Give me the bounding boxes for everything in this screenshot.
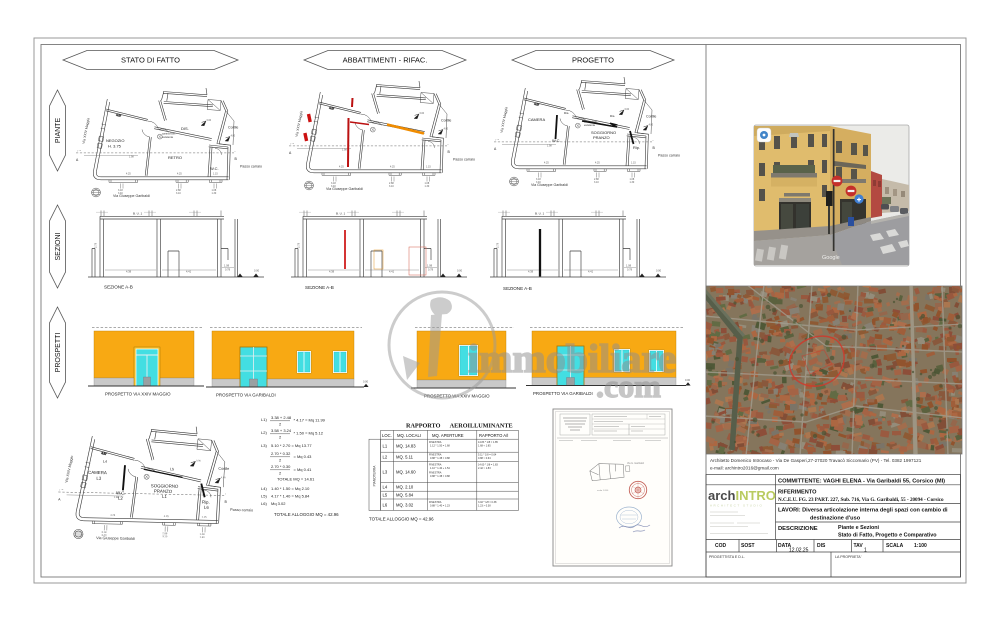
svg-text:0.00: 0.00 [207, 120, 212, 122]
svg-text:,→: ,→ [290, 141, 294, 145]
svg-text:MQ. 14.83: MQ. 14.83 [396, 443, 416, 448]
svg-text:SCALA: SCALA [886, 543, 904, 549]
svg-text:ARCHITECT STUDIO: ARCHITECT STUDIO [710, 504, 763, 508]
svg-text:1.30: 1.30 [630, 181, 635, 184]
svg-text:L4): L4) [261, 486, 267, 491]
svg-text:PROSPETTO VIA XXIV MAGGIO: PROSPETTO VIA XXIV MAGGIO [105, 392, 171, 397]
svg-text:CAMERA: CAMERA [528, 117, 545, 122]
svg-text:PROSPETTI: PROSPETTI [55, 333, 62, 373]
svg-text:,→: ,→ [59, 487, 64, 491]
svg-text:ABBATTIMENTI - RIFAC.: ABBATTIMENTI - RIFAC. [343, 56, 428, 65]
svg-text:Via G. Garibaldi: Via G. Garibaldi [627, 462, 644, 465]
svg-text:Dis.: Dis. [564, 111, 569, 115]
svg-text:,: , [653, 138, 654, 142]
svg-text:SEZIONE A-B: SEZIONE A-B [503, 286, 532, 291]
svg-text:4.25: 4.25 [595, 162, 600, 165]
svg-text:MQ. 3.02: MQ. 3.02 [396, 502, 414, 507]
svg-text:MQ. 5.84: MQ. 5.84 [396, 493, 414, 498]
svg-text:2.70 * 0.30: 2.70 * 0.30 [271, 464, 291, 469]
svg-text:0.88 > 0.64: 0.88 > 0.64 [478, 457, 491, 460]
svg-text:L1): L1) [261, 417, 267, 422]
svg-text:3.10: 3.10 [594, 181, 599, 184]
svg-text:Cortile: Cortile [646, 115, 656, 119]
svg-text:2.78: 2.78 [93, 242, 97, 248]
svg-text:4.00: 4.00 [444, 129, 449, 131]
svg-text:L2): L2) [261, 430, 267, 435]
svg-text:DESCRIZIONE: DESCRIZIONE [778, 526, 818, 532]
svg-text:0.88 * 1.38 = 0.88: 0.88 * 1.38 = 0.88 [430, 457, 450, 460]
svg-text:3.58 + 3.24: 3.58 + 3.24 [271, 428, 292, 433]
svg-text:1.15: 1.15 [213, 173, 218, 176]
svg-text:SOST: SOST [741, 543, 755, 549]
svg-text:1.30: 1.30 [212, 192, 217, 195]
svg-text:2.78: 2.78 [495, 242, 499, 248]
svg-text:2.70 * 0.32: 2.70 * 0.32 [271, 451, 291, 456]
svg-text:4.00: 4.00 [221, 476, 226, 479]
svg-text:L4: L4 [383, 484, 388, 489]
svg-text:0.00: 0.00 [196, 459, 201, 462]
svg-text:5.10 * 2.70 = Mq 13.77: 5.10 * 2.70 = Mq 13.77 [271, 443, 312, 448]
svg-text:1.15: 1.15 [202, 516, 208, 519]
svg-text:0.88 * 1.40 = 1.23: 0.88 * 1.40 = 1.23 [430, 505, 450, 508]
svg-text:Via Giuseppe Garibaldi: Via Giuseppe Garibaldi [113, 194, 150, 198]
svg-text:Passo carraio: Passo carraio [240, 165, 262, 169]
svg-text:NEGOZIO: NEGOZIO [106, 138, 124, 143]
svg-text:B. U. 1: B. U. 1 [336, 212, 346, 216]
svg-text:3.10: 3.10 [162, 535, 168, 538]
svg-text:1: 1 [864, 548, 867, 554]
svg-text:4.25: 4.25 [110, 514, 116, 517]
svg-text:Rip.: Rip. [633, 145, 640, 150]
svg-text:1.08: 1.08 [626, 264, 632, 268]
svg-text:1.98: 1.98 [129, 156, 134, 159]
svg-text:Via Giuseppe Garibaldi: Via Giuseppe Garibaldi [531, 183, 568, 187]
svg-text:PIANTE: PIANTE [55, 118, 62, 144]
svg-text:0.00: 0.00 [685, 378, 691, 382]
svg-text:3.10: 3.10 [389, 185, 394, 188]
svg-text:Cortile: Cortile [441, 119, 451, 123]
svg-text:SEZIONE A-B: SEZIONE A-B [305, 285, 334, 290]
svg-text:L1: L1 [162, 494, 168, 499]
svg-text:4.25: 4.25 [390, 166, 395, 169]
svg-text:1:100: 1:100 [914, 543, 927, 549]
svg-text:MQ. APERTURE: MQ. APERTURE [432, 433, 464, 438]
svg-text:PIANOTERRA: PIANOTERRA [373, 465, 377, 487]
svg-text:Passo carraio: Passo carraio [230, 508, 253, 512]
svg-text:MQ. LOCALI: MQ. LOCALI [397, 433, 421, 438]
svg-text:Cortile: Cortile [228, 126, 238, 130]
svg-text:1.98: 1.98 [342, 149, 347, 152]
svg-text:B. U. 1: B. U. 1 [535, 212, 545, 216]
svg-text:COMMITTENTE: VAGHI ELENA - Via: COMMITTENTE: VAGHI ELENA - Via Garibaldi… [778, 478, 945, 484]
svg-text:PROGETTO: PROGETTO [572, 56, 614, 65]
svg-text:CAMERA: CAMERA [88, 470, 107, 475]
svg-text:L6): L6) [261, 501, 267, 506]
svg-text:Via Giuseppe Garibaldi: Via Giuseppe Garibaldi [96, 536, 135, 541]
svg-text:Google: Google [822, 255, 840, 261]
svg-text:.com: .com [596, 368, 661, 404]
svg-text:L2: L2 [383, 455, 388, 460]
svg-text:1.08: 1.08 [224, 264, 230, 268]
svg-text:1.98: 1.98 [547, 145, 552, 148]
svg-text:L5: L5 [383, 493, 388, 498]
svg-text:4.25: 4.25 [339, 166, 344, 169]
svg-text:STATO DI FATTO: STATO DI FATTO [121, 56, 180, 65]
svg-text:1.68 < 1.85: 1.68 < 1.85 [478, 445, 491, 448]
svg-text:Passo carraio: Passo carraio [453, 158, 475, 162]
svg-text:L3: L3 [96, 476, 102, 481]
svg-text:PRANZO: PRANZO [593, 135, 610, 140]
svg-text:1.10 * 1.40 + 1.54: 1.10 * 1.40 + 1.54 [430, 467, 450, 470]
svg-text:MQ. 5.11: MQ. 5.11 [396, 455, 414, 460]
svg-text:TOTALE ALLOGGIO MQ = 42.96: TOTALE ALLOGGIO MQ = 42.96 [369, 517, 434, 522]
svg-text:RETRO: RETRO [168, 155, 182, 160]
svg-text:4.25: 4.25 [164, 515, 170, 518]
svg-text:RIFERIMENTO: RIFERIMENTO [778, 490, 817, 496]
svg-text:L5): L5) [261, 494, 267, 499]
svg-text:B. U. 1: B. U. 1 [133, 212, 143, 216]
svg-text:Cortile: Cortile [218, 467, 229, 471]
svg-text:L1: L1 [383, 443, 388, 448]
svg-text:DIS.: DIS. [181, 126, 189, 131]
svg-text:e-mail: archintro2016@gmail.co: e-mail: archintro2016@gmail.com [710, 466, 779, 471]
svg-text:Via Giuseppe Garibaldi: Via Giuseppe Garibaldi [326, 187, 363, 191]
svg-text:archINTRO: archINTRO [708, 488, 776, 503]
svg-text:scala 1:200: scala 1:200 [597, 490, 609, 492]
svg-text:L2: L2 [118, 496, 124, 501]
svg-text:SEZIONI: SEZIONI [55, 232, 62, 260]
svg-text:4.25: 4.25 [544, 162, 549, 165]
svg-text:MQ. 2.10: MQ. 2.10 [396, 484, 414, 489]
svg-text:* 1.50 = Mq 5.12: * 1.50 = Mq 5.12 [294, 431, 324, 436]
svg-text:0.88 * 1.38 = 0.88: 0.88 * 1.38 = 0.88 [430, 475, 450, 478]
svg-text:L3): L3) [261, 443, 267, 448]
svg-text:3.10: 3.10 [176, 192, 181, 195]
svg-text:= Mq 0.43: = Mq 0.43 [294, 454, 313, 459]
svg-text:TOTALE MQ = 14.61: TOTALE MQ = 14.61 [277, 477, 315, 482]
svg-text:1.23 > 0.38: 1.23 > 0.38 [478, 505, 491, 508]
svg-text:RAPPORTO A/I: RAPPORTO A/I [479, 433, 508, 438]
svg-text:PROGETTISTA E D.L.: PROGETTISTA E D.L. [709, 555, 745, 559]
svg-text:,: , [225, 491, 226, 495]
svg-text:0.00: 0.00 [420, 113, 425, 115]
svg-text:0.78: 0.78 [627, 268, 633, 272]
svg-text:Architetto Domenico Introcaso: Architetto Domenico Introcaso - Via De G… [710, 458, 922, 463]
svg-text:TAV: TAV [854, 543, 864, 549]
svg-text:0.00: 0.00 [254, 269, 260, 273]
svg-text:4.25: 4.25 [177, 173, 182, 176]
svg-text:esistente: esistente [162, 135, 174, 139]
svg-text:1.40 * 1.50 = Mq 2.10: 1.40 * 1.50 = Mq 2.10 [271, 486, 310, 491]
svg-text:0.00: 0.00 [656, 269, 662, 273]
svg-text:COD: COD [715, 543, 727, 549]
svg-text:L3: L3 [383, 470, 388, 475]
svg-text:LOC.: LOC. [382, 433, 392, 438]
svg-text:W.C.: W.C. [210, 166, 219, 171]
svg-text:1.15: 1.15 [426, 166, 431, 169]
svg-text:PROSPETTO VIA GARIBALDI: PROSPETTO VIA GARIBALDI [533, 391, 593, 396]
svg-text:LAVORI: Diversa articolazione: LAVORI: Diversa articolazione interna de… [778, 508, 948, 514]
svg-text:PROSPETTO VIA GARIBALDI: PROSPETTO VIA GARIBALDI [216, 393, 276, 398]
svg-text:Mq 3.02: Mq 3.02 [271, 501, 286, 506]
svg-text:,→: ,→ [77, 148, 81, 152]
svg-text:2.78: 2.78 [296, 242, 300, 248]
svg-text:= Mq 0.41: = Mq 0.41 [294, 467, 313, 472]
svg-text:2.42 > 1.83: 2.42 > 1.83 [478, 467, 491, 470]
svg-text:L6: L6 [383, 502, 388, 507]
svg-text:* 4.17 = Mq 11.99: * 4.17 = Mq 11.99 [294, 418, 326, 423]
svg-text:Stato di Fatto, Progetto e Com: Stato di Fatto, Progetto e Comparativo [838, 533, 937, 539]
svg-text:1.08: 1.08 [427, 264, 433, 268]
svg-text:1.30: 1.30 [425, 185, 430, 188]
svg-text:destinazione d'uso: destinazione d'uso [810, 516, 861, 522]
svg-text:L5: L5 [170, 467, 174, 471]
svg-text:RAPPORTO AEROILLUMINANTE: RAPPORTO AEROILLUMINANTE [406, 423, 513, 430]
svg-text:4.00: 4.00 [231, 136, 236, 138]
svg-text:,: , [448, 142, 449, 146]
svg-text:0.00: 0.00 [457, 269, 463, 273]
svg-text:Dis.: Dis. [610, 114, 615, 118]
svg-text:DIS: DIS [817, 543, 826, 549]
svg-text:Passo carraio: Passo carraio [658, 154, 680, 158]
svg-text:N.C.E.U. FG. 23 PART. 227, Sub: N.C.E.U. FG. 23 PART. 227, Sub. 716, Via… [778, 497, 944, 503]
svg-text:4.17 * 1.40 = Mq 5.84: 4.17 * 1.40 = Mq 5.84 [271, 494, 310, 499]
svg-text:4.00: 4.00 [649, 125, 654, 127]
svg-text:0.78: 0.78 [225, 268, 231, 272]
svg-text:MQ. 14.60: MQ. 14.60 [396, 470, 416, 475]
svg-text:H. 3.75: H. 3.75 [108, 144, 122, 149]
svg-text:1.30: 1.30 [200, 536, 206, 539]
svg-text:TOTALE ALLOGGIO MQ = 42.96: TOTALE ALLOGGIO MQ = 42.96 [274, 512, 339, 517]
svg-text:0.00: 0.00 [625, 109, 630, 111]
svg-text:0.78: 0.78 [428, 268, 434, 272]
svg-text:12.02.25: 12.02.25 [789, 548, 809, 554]
svg-text:L6: L6 [204, 505, 210, 510]
svg-text:3.38 + 2.48: 3.38 + 2.48 [271, 415, 292, 420]
svg-text:1.15: 1.15 [631, 162, 636, 165]
svg-text:LA PROPRIETA': LA PROPRIETA' [835, 555, 862, 559]
svg-text:1.12 * 1.50 = 1.68: 1.12 * 1.50 = 1.68 [430, 445, 450, 448]
svg-text:Piante e Sezioni: Piante e Sezioni [838, 525, 880, 531]
svg-text:4.25: 4.25 [126, 173, 131, 176]
svg-text:0.00: 0.00 [363, 380, 369, 384]
svg-text:,→: ,→ [495, 137, 499, 141]
svg-text:,: , [235, 149, 236, 153]
svg-text:SEZIONE A-B: SEZIONE A-B [104, 285, 133, 290]
svg-text:L4: L4 [103, 460, 107, 464]
